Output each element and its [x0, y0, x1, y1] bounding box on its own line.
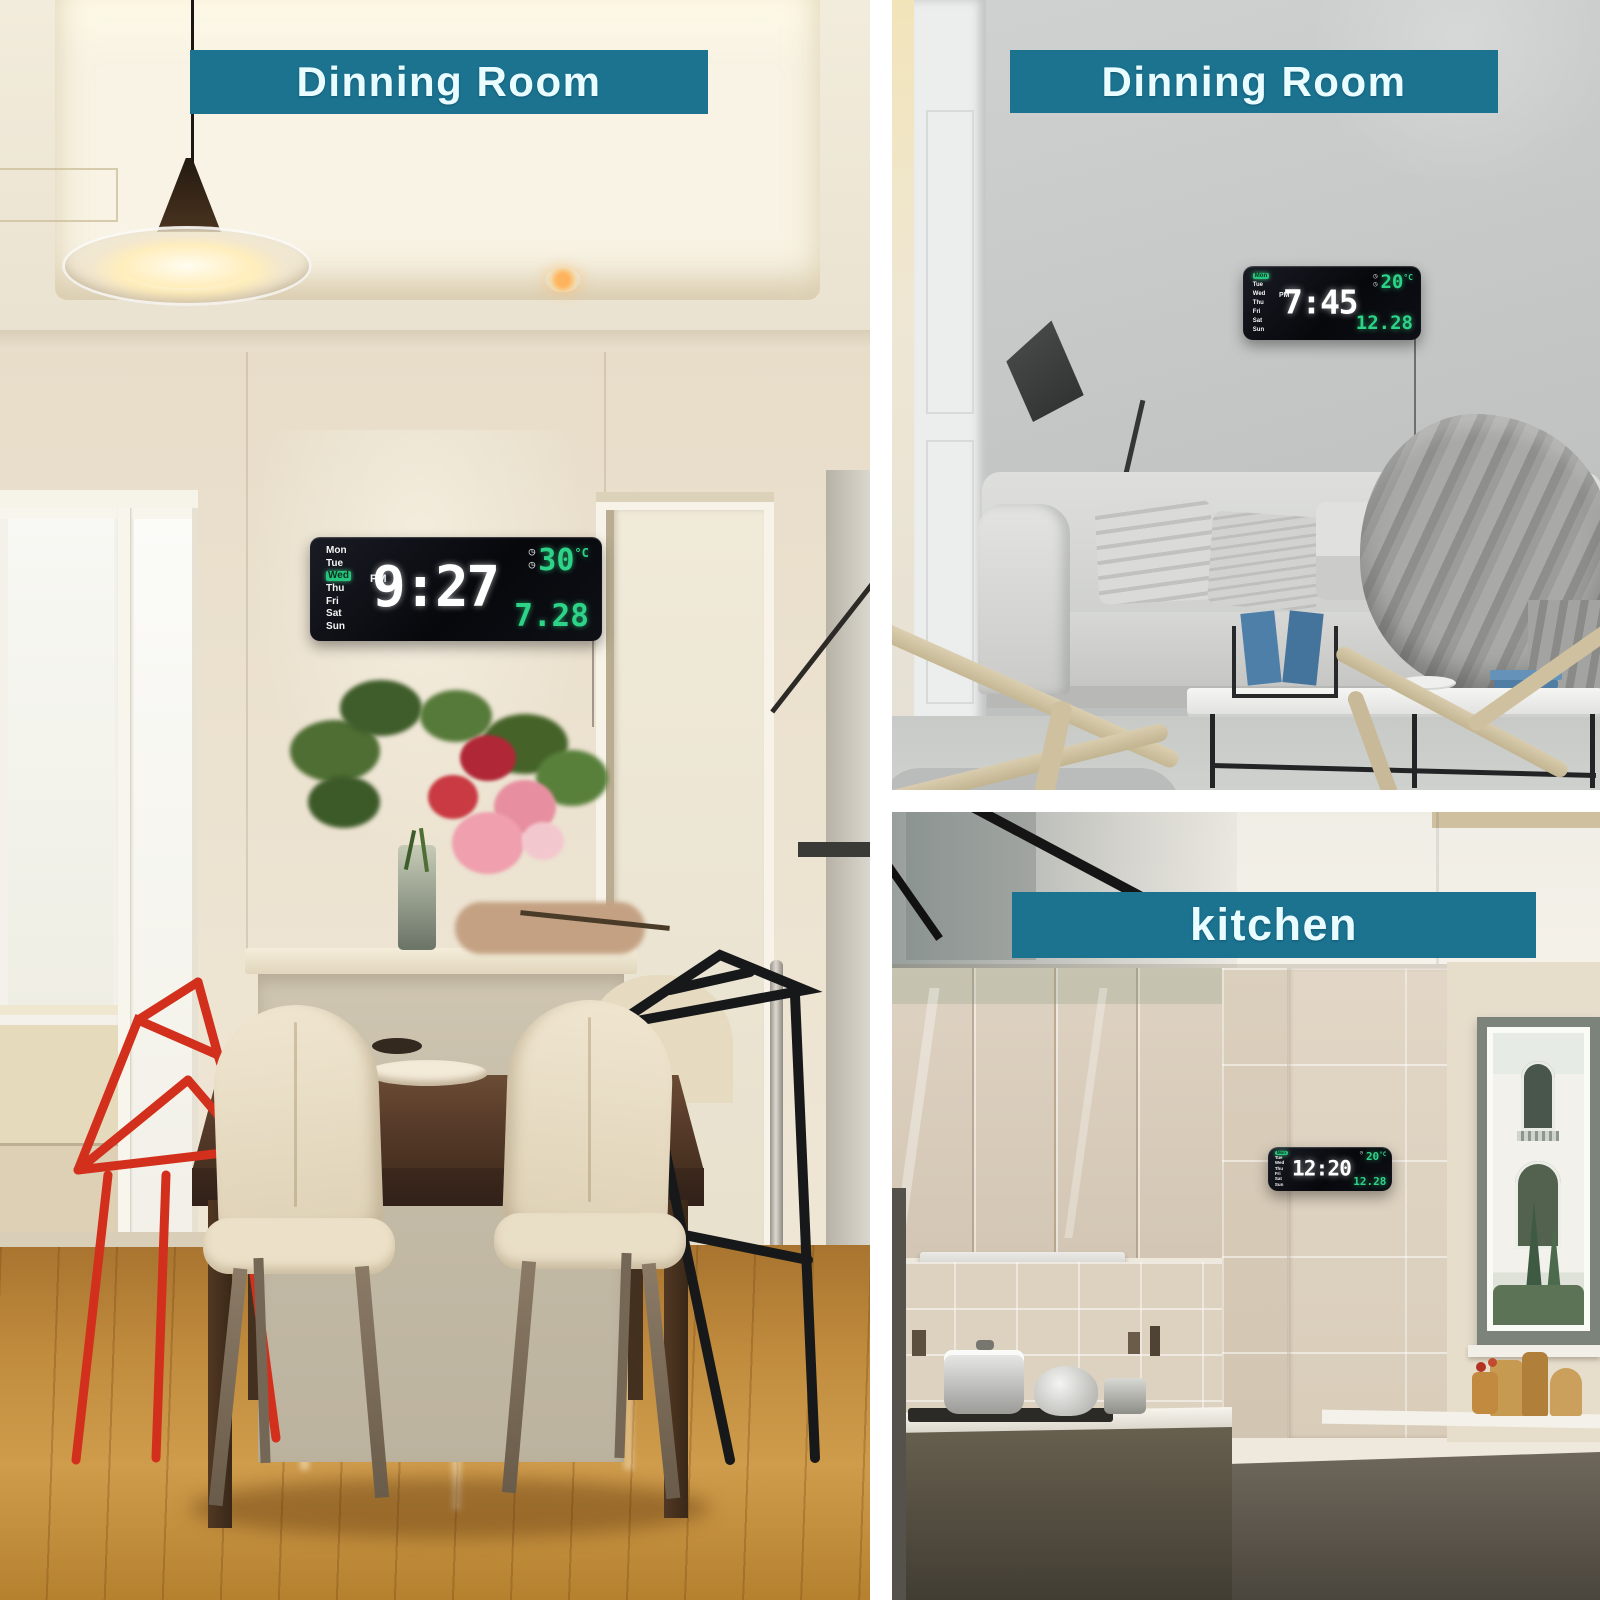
table-leg: [1412, 714, 1417, 788]
date-display: 7.28: [514, 601, 589, 632]
banner-dining-right: Dinning Room: [1010, 50, 1498, 113]
weekday-active: Wed: [326, 571, 351, 581]
alarm-icon: ◷: [529, 559, 536, 570]
cutting-board: [1522, 1352, 1548, 1416]
led-wall-clock-living: Mon Tue Wed Thu Fri Sat Sun PM 7:45 ◷ ◷ …: [1243, 266, 1421, 340]
time-display: 9:27: [372, 555, 498, 620]
date-display: 12.28: [1353, 1176, 1386, 1187]
magazine-rack: [1232, 626, 1338, 698]
upper-cabinets: [892, 968, 1222, 1258]
weekday: Sat: [326, 609, 351, 619]
banner-dining-left: Dinning Room: [190, 50, 708, 114]
temperature-unit: °C: [574, 547, 588, 559]
weekday: Sun: [326, 622, 351, 632]
alarm-icon: ◷: [1360, 1151, 1363, 1156]
banner-label: Dinning Room: [297, 58, 602, 106]
alarm-icon: ◷: [1373, 273, 1377, 280]
temperature-display: 30: [538, 546, 574, 576]
recessed-spotlight: [545, 268, 581, 292]
time-display: 12:20: [1292, 1157, 1351, 1181]
side-light-band: [892, 0, 914, 790]
kettle: [1034, 1366, 1098, 1416]
weekday: Sat: [1253, 318, 1269, 324]
alarm-icon: ◷: [1373, 281, 1377, 288]
island-corner: [1232, 1452, 1600, 1600]
tile-column: [1287, 968, 1452, 1438]
living-room-photo: Dinning Room Mon Tue Wed Thu Fri Sat Sun…: [892, 0, 1600, 790]
temperature-unit: °C: [1403, 274, 1413, 282]
round-board: [1550, 1368, 1582, 1416]
dining-chair-left: [195, 990, 405, 1515]
weekday: Sun: [1253, 327, 1269, 333]
steel-pot: [944, 1350, 1024, 1414]
weekday-list: Mon Tue Wed Thu Fri Sat Sun: [1275, 1151, 1288, 1187]
temperature-display: 20: [1366, 1151, 1379, 1162]
pillow: [1207, 510, 1323, 611]
weekday: Fri: [1253, 309, 1269, 315]
product-collage: Dinning Room: [0, 0, 1600, 1600]
weekday-list: Mon Tue Wed Thu Fri Sat Sun: [326, 546, 351, 631]
led-wall-clock-kitchen: Mon Tue Wed Thu Fri Sat Sun 12:20 ◷ 20 °…: [1268, 1147, 1392, 1191]
weekday: Thu: [326, 584, 351, 594]
hedge: [1493, 1285, 1584, 1325]
kitchen-photo: kitchen Mon Tue Wed Thu Fri Sat Sun: [892, 812, 1600, 1600]
ceiling-hatch: [0, 168, 118, 222]
weekday: Mon: [326, 546, 351, 556]
temperature-unit: °C: [1379, 1152, 1386, 1158]
jar: [1472, 1372, 1498, 1414]
weekday-list: Mon Tue Wed Thu Fri Sat Sun: [1253, 273, 1269, 334]
weekday: Tue: [326, 559, 351, 569]
counter-clutter: [1150, 1326, 1160, 1356]
flower-vase: [398, 845, 436, 950]
weekday: Wed: [1253, 291, 1269, 297]
date-display: 12.28: [1356, 314, 1413, 333]
kitchen-window: [1477, 1017, 1600, 1347]
weekday-active: Mon: [1253, 273, 1269, 279]
banner-label: kitchen: [1190, 899, 1358, 951]
weekday: Thu: [1253, 300, 1269, 306]
window-view: [1493, 1033, 1584, 1325]
temperature-display: 20: [1380, 273, 1403, 292]
pillow: [1094, 499, 1215, 605]
banner-kitchen: kitchen: [1012, 892, 1536, 958]
counter-clutter: [912, 1330, 926, 1356]
fruit: [1476, 1362, 1486, 1372]
weekday: Sun: [1275, 1183, 1288, 1188]
table-leg: [1210, 714, 1215, 788]
arch-window: [1521, 1061, 1555, 1131]
led-wall-clock-dining: Mon Tue Wed Thu Fri Sat Sun PM 9:27 ◷ ◷ …: [310, 537, 602, 641]
counter-clutter: [1128, 1332, 1140, 1354]
window-bar: [798, 842, 870, 857]
banner-label: Dinning Room: [1102, 58, 1407, 106]
time-display: 7:45: [1283, 283, 1357, 322]
weekday: Fri: [326, 597, 351, 607]
small-pot: [1104, 1378, 1146, 1414]
dining-chair-right: [478, 985, 693, 1510]
fruit: [1488, 1358, 1497, 1367]
lower-cabinets: [892, 1426, 1232, 1600]
sofa-armrest: [978, 504, 1070, 694]
weekday: Tue: [1253, 282, 1269, 288]
floor-lamp-shade: [1002, 317, 1087, 424]
alarm-icon: ◷: [529, 546, 536, 557]
dining-room-photo: Dinning Room: [0, 0, 870, 1600]
